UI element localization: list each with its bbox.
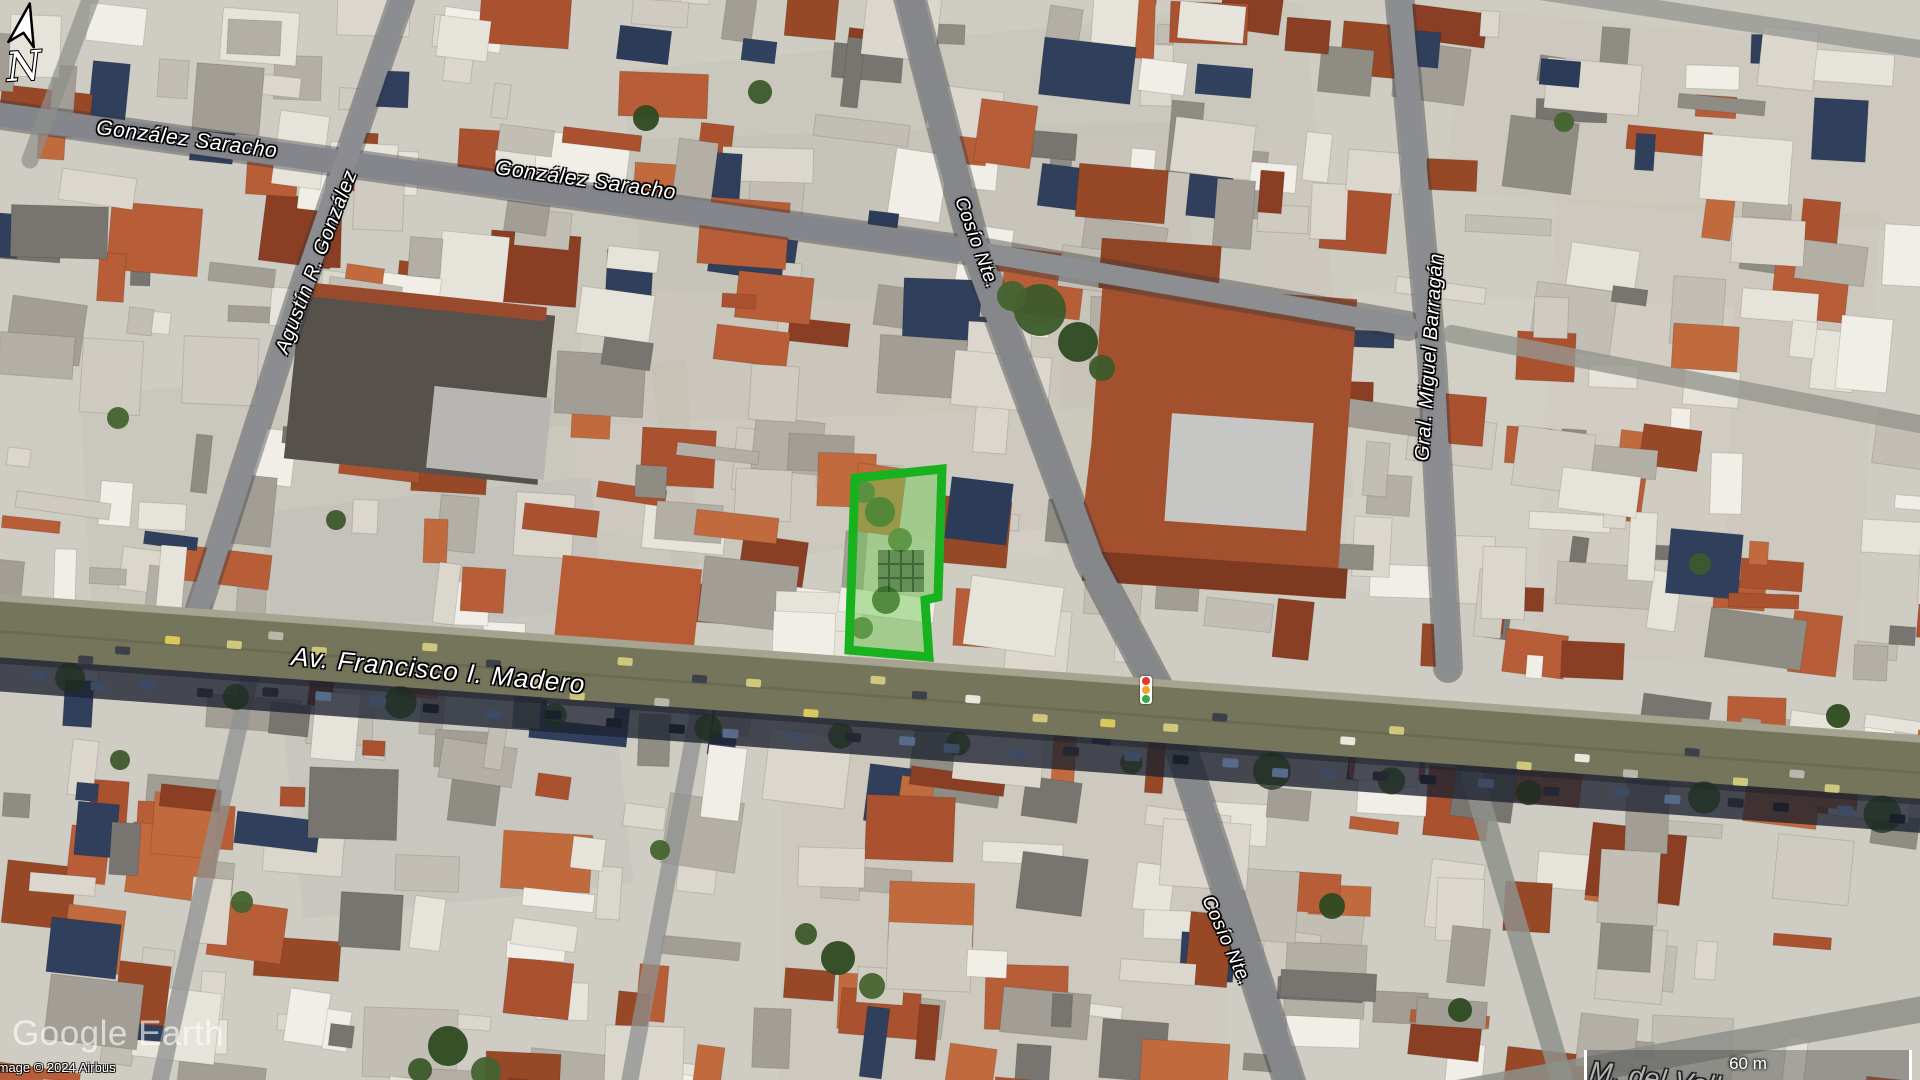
imagery-copyright: Image © 2024 Airbus xyxy=(0,1060,116,1075)
north-arrow-icon xyxy=(8,1,42,47)
scale-bar: 60 m xyxy=(1584,1050,1912,1080)
compass-n-label: N xyxy=(4,43,45,88)
google-earth-viewport[interactable]: González Saracho González Saracho Agustí… xyxy=(0,0,1920,1080)
satellite-imagery-canvas[interactable] xyxy=(0,0,1920,1080)
compass-north-indicator[interactable]: N xyxy=(0,0,50,88)
scale-bar-label: 60 m xyxy=(1584,1054,1912,1074)
google-earth-watermark: Google Earth xyxy=(12,1014,224,1054)
traffic-light-amber-dot xyxy=(1142,686,1150,694)
traffic-light-icon xyxy=(1140,676,1152,704)
traffic-light-red-dot xyxy=(1142,677,1150,685)
traffic-light-green-dot xyxy=(1142,695,1150,703)
